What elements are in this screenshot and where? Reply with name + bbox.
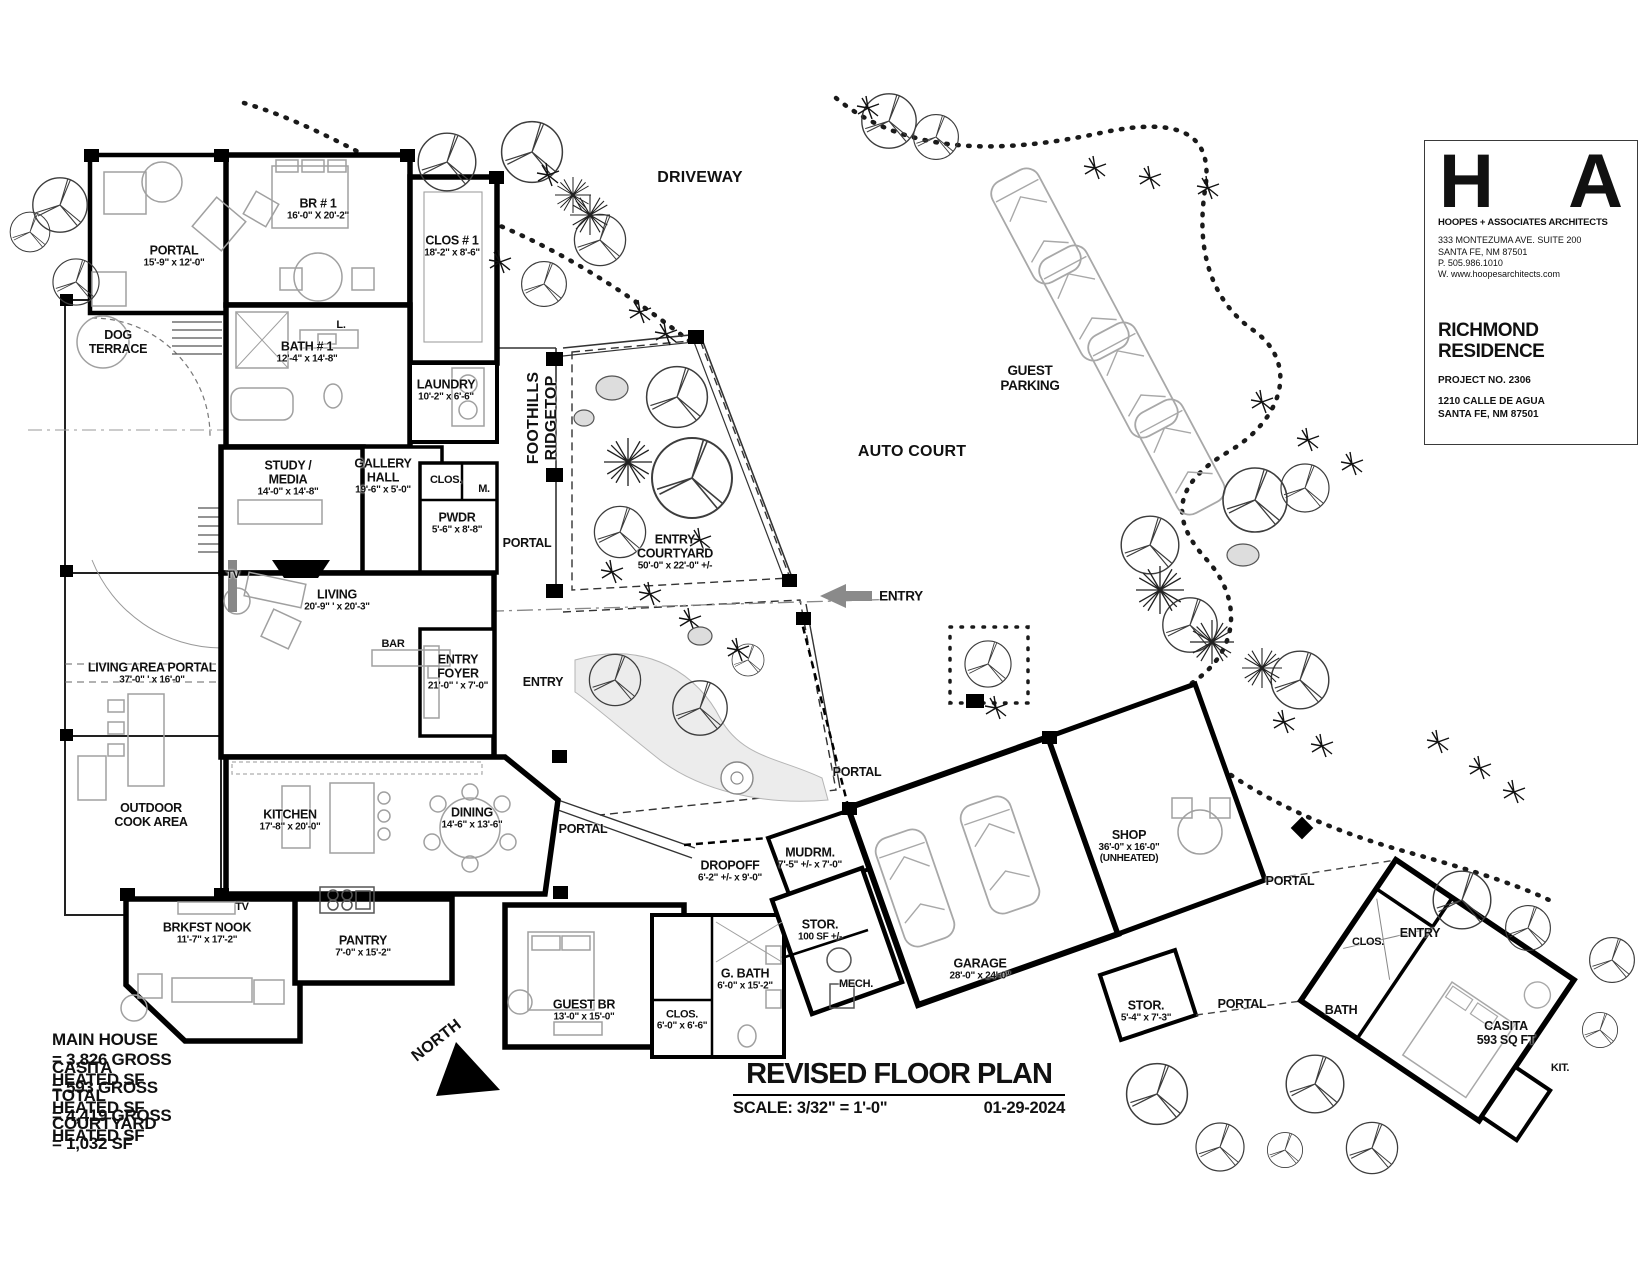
label-bath-casita: BATH	[1325, 1003, 1358, 1017]
label-clos-casita: CLOS.	[1352, 936, 1384, 948]
north-arrow-icon	[436, 1042, 500, 1096]
label-tv-nook: TV	[235, 901, 248, 913]
label-living-area-portal: LIVING AREA PORTAL37'-0" ' x 16'-0"	[88, 660, 216, 685]
label-dog-terrace: DOGTERRACE	[89, 328, 147, 356]
label-outdoor-cook: OUTDOORCOOK AREA	[114, 801, 187, 829]
label-foothills-ridgetop: FOOTHILLSRIDGETOP	[525, 372, 561, 464]
plan-title: REVISED FLOOR PLAN	[733, 1058, 1065, 1096]
architect-title-block: H A HOOPES + ASSOCIATES ARCHITECTS 333 M…	[1424, 140, 1638, 310]
firm-address: 333 MONTEZUMA AVE. SUITE 200 SANTA FE, N…	[1425, 228, 1637, 280]
label-pwdr: PWDR5'-6" x 8'-8"	[432, 510, 482, 535]
label-bar: BAR	[382, 638, 405, 650]
label-casita: CASITA593 SQ FT	[1477, 1019, 1535, 1047]
label-pantry: PANTRY7'-0" x 15'-2"	[335, 933, 391, 958]
label-mech: MECH.	[839, 978, 873, 990]
label-guest-parking: GUESTPARKING	[1000, 363, 1059, 393]
shrubs	[555, 177, 1282, 688]
label-laundry: LAUNDRY10'-2" x 6'-6"	[417, 377, 476, 402]
boulders	[574, 376, 1259, 645]
label-entry-inner: ENTRY	[523, 675, 563, 689]
label-br1: BR # 116'-0" X 20'-2"	[287, 196, 349, 221]
label-entry-foyer: ENTRYFOYER21'-0" ' x 7'-0"	[428, 652, 488, 691]
label-auto-court: AUTO COURT	[858, 443, 966, 461]
label-bath1: BATH # 112'-4" x 14'-8"	[277, 339, 338, 364]
label-garage: GARAGE28'-0" x 24'-0"	[950, 956, 1011, 981]
label-portal-shop: PORTAL	[1266, 874, 1315, 888]
label-study-media: STUDY /MEDIA14'-0" x 14'-8"	[258, 458, 319, 497]
plan-date: 01-29-2024	[984, 1099, 1065, 1118]
label-portal-garage: PORTAL	[833, 765, 882, 779]
label-guest-br: GUEST BR13'-0" x 15'-0"	[553, 997, 615, 1022]
project-title-block: RICHMOND RESIDENCE PROJECT NO. 2306 1210…	[1424, 308, 1638, 445]
label-entry-courtyard: ENTRYCOURTYARD50'-0" x 22'-0" +/-	[637, 532, 713, 571]
label-gbath: G. BATH6'-0" x 15'-2"	[717, 966, 773, 991]
label-linen: L.	[336, 319, 345, 331]
entry-arrow-icon	[820, 584, 872, 608]
label-entry-casita: ENTRY	[1400, 926, 1440, 940]
label-portal-east: PORTAL	[503, 536, 552, 550]
summary-row: COURTYARD= 1,032 SF	[52, 1114, 174, 1154]
label-portal-dining: PORTAL	[559, 822, 608, 836]
label-shop: SHOP36'-0" x 16'-0"(UNHEATED)	[1099, 828, 1160, 864]
label-stor100: STOR.100 SF +/-	[798, 917, 842, 942]
label-tv-living: TV	[226, 569, 239, 581]
project-number: PROJECT NO. 2306	[1425, 363, 1637, 386]
gravel-path	[575, 654, 828, 802]
label-m-clos: M.	[478, 483, 490, 495]
label-entry-main: ENTRY	[879, 588, 923, 603]
label-portal-casita: PORTAL	[1218, 997, 1267, 1011]
label-clos-hall: CLOS.	[430, 474, 462, 486]
label-portal-nw: PORTAL15'-9" x 12'-0"	[144, 243, 205, 268]
label-kitchen: KITCHEN17'-8" x 20'-0"	[260, 807, 321, 832]
label-clos-guest: CLOS.6'-0" x 6'-6"	[657, 1008, 707, 1032]
project-address: 1210 CALLE DE AGUA SANTA FE, NM 87501	[1425, 386, 1637, 421]
label-kit-casita: KIT.	[1551, 1062, 1569, 1074]
firm-logo: H A	[1425, 141, 1637, 213]
label-gallery-hall: GALLERYHALL19'-6" x 5'-0"	[354, 456, 411, 495]
label-living: LIVING20'-9" ' x 20'-3"	[304, 587, 369, 612]
project-name: RICHMOND RESIDENCE	[1425, 308, 1637, 363]
label-mudrm: MUDRM.7'-5" +/- x 7'-0"	[778, 845, 842, 870]
label-clos1: CLOS # 118'-2" x 8'-6"	[424, 233, 480, 258]
floor-plan-sheet: DRIVEWAY GUESTPARKING AUTO COURT ENTRY F…	[0, 0, 1650, 1275]
label-driveway: DRIVEWAY	[657, 169, 742, 187]
plan-title-block: REVISED FLOOR PLAN SCALE: 3/32" = 1'-0" …	[733, 1058, 1065, 1118]
label-stor54: STOR.5'-4" x 7'-3"	[1121, 998, 1171, 1023]
label-brkfst-nook: BRKFST NOOK11'-7" x 17'-2"	[163, 920, 251, 945]
label-dropoff: DROPOFF6'-2" +/- x 9'-0"	[698, 858, 762, 883]
plan-scale: SCALE: 3/32" = 1'-0"	[733, 1099, 887, 1118]
label-dining: DINING14'-6" x 13'-6"	[442, 805, 503, 830]
